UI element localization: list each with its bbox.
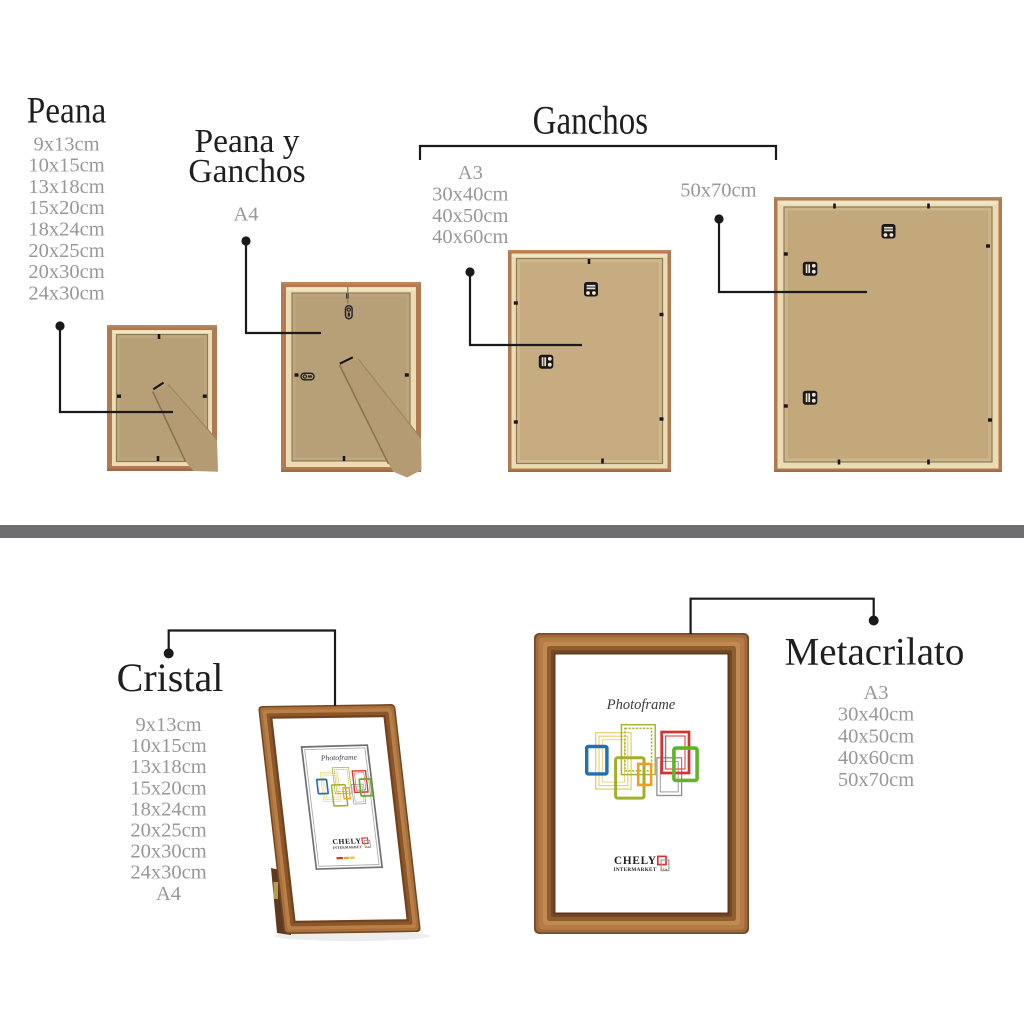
- svg-text:18x24cm: 18x24cm: [28, 219, 104, 241]
- svg-text:18x24cm: 18x24cm: [130, 798, 206, 820]
- svg-text:9x13cm: 9x13cm: [135, 714, 201, 736]
- svg-text:20x30cm: 20x30cm: [28, 261, 104, 283]
- svg-text:Cristal: Cristal: [117, 655, 224, 700]
- svg-text:20x25cm: 20x25cm: [130, 820, 206, 842]
- svg-text:Metacrilato: Metacrilato: [785, 631, 965, 674]
- svg-text:24x30cm: 24x30cm: [130, 862, 206, 884]
- svg-text:A3: A3: [458, 162, 483, 184]
- svg-text:30x40cm: 30x40cm: [838, 704, 914, 726]
- svg-text:40x50cm: 40x50cm: [838, 725, 914, 747]
- svg-text:A4: A4: [156, 883, 181, 905]
- svg-text:50x70cm: 50x70cm: [680, 180, 756, 202]
- svg-text:A4: A4: [233, 204, 258, 226]
- svg-text:Ganchos: Ganchos: [533, 97, 648, 142]
- svg-text:Peana: Peana: [27, 90, 107, 131]
- svg-text:Ganchos: Ganchos: [188, 153, 305, 190]
- svg-text:Photoframe: Photoframe: [319, 753, 358, 763]
- svg-text:Photoframe: Photoframe: [606, 697, 676, 713]
- svg-text:13x18cm: 13x18cm: [130, 756, 206, 778]
- svg-text:15x20cm: 15x20cm: [130, 777, 206, 799]
- svg-text:50x70cm: 50x70cm: [838, 769, 914, 791]
- svg-text:13x18cm: 13x18cm: [28, 176, 104, 198]
- svg-text:40x50cm: 40x50cm: [432, 205, 508, 227]
- svg-text:40x60cm: 40x60cm: [838, 747, 914, 769]
- svg-text:20x30cm: 20x30cm: [130, 841, 206, 863]
- svg-text:24x30cm: 24x30cm: [28, 282, 104, 304]
- svg-text:10x15cm: 10x15cm: [130, 735, 206, 757]
- svg-text:30x40cm: 30x40cm: [432, 183, 508, 205]
- svg-text:A3: A3: [863, 682, 888, 704]
- svg-text:15x20cm: 15x20cm: [28, 197, 104, 219]
- svg-text:20x25cm: 20x25cm: [28, 240, 104, 262]
- svg-text:40x60cm: 40x60cm: [432, 226, 508, 248]
- svg-text:9x13cm: 9x13cm: [33, 133, 99, 155]
- svg-text:10x15cm: 10x15cm: [28, 155, 104, 177]
